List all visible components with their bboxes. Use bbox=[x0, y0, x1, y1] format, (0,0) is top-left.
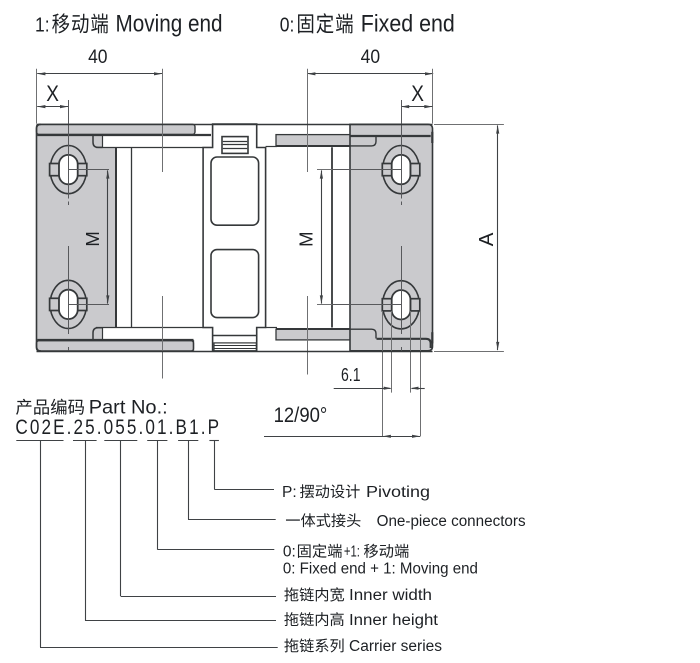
svg-text:One-piece connectors: One-piece connectors bbox=[377, 513, 526, 530]
svg-text:40: 40 bbox=[361, 45, 380, 67]
svg-text:Carrier series: Carrier series bbox=[349, 638, 442, 655]
svg-text:X: X bbox=[46, 82, 59, 107]
svg-text:P:: P: bbox=[282, 484, 297, 501]
svg-text:Moving end: Moving end bbox=[116, 10, 223, 37]
svg-text:A: A bbox=[475, 232, 498, 246]
svg-text:1:: 1: bbox=[35, 14, 50, 37]
svg-text:X: X bbox=[411, 82, 424, 107]
svg-text:Pivoting: Pivoting bbox=[366, 484, 430, 501]
svg-text:M: M bbox=[82, 231, 103, 246]
svg-text:M: M bbox=[296, 231, 317, 246]
svg-text:C02E.25.055.01.B1.P: C02E.25.055.01.B1.P bbox=[15, 415, 219, 439]
svg-text:0: Fixed end + 1: Moving end: 0: Fixed end + 1: Moving end bbox=[283, 561, 478, 578]
svg-text:12/90°: 12/90° bbox=[274, 404, 328, 427]
svg-text:Inner height: Inner height bbox=[349, 612, 439, 629]
svg-text:Fixed end: Fixed end bbox=[361, 10, 455, 37]
svg-text:40: 40 bbox=[88, 45, 107, 67]
svg-text:+1:: +1: bbox=[344, 544, 360, 561]
svg-text:Inner width: Inner width bbox=[349, 587, 432, 604]
svg-text:6.1: 6.1 bbox=[341, 364, 361, 385]
svg-text:0:: 0: bbox=[280, 14, 295, 37]
svg-text:0:: 0: bbox=[283, 544, 296, 561]
